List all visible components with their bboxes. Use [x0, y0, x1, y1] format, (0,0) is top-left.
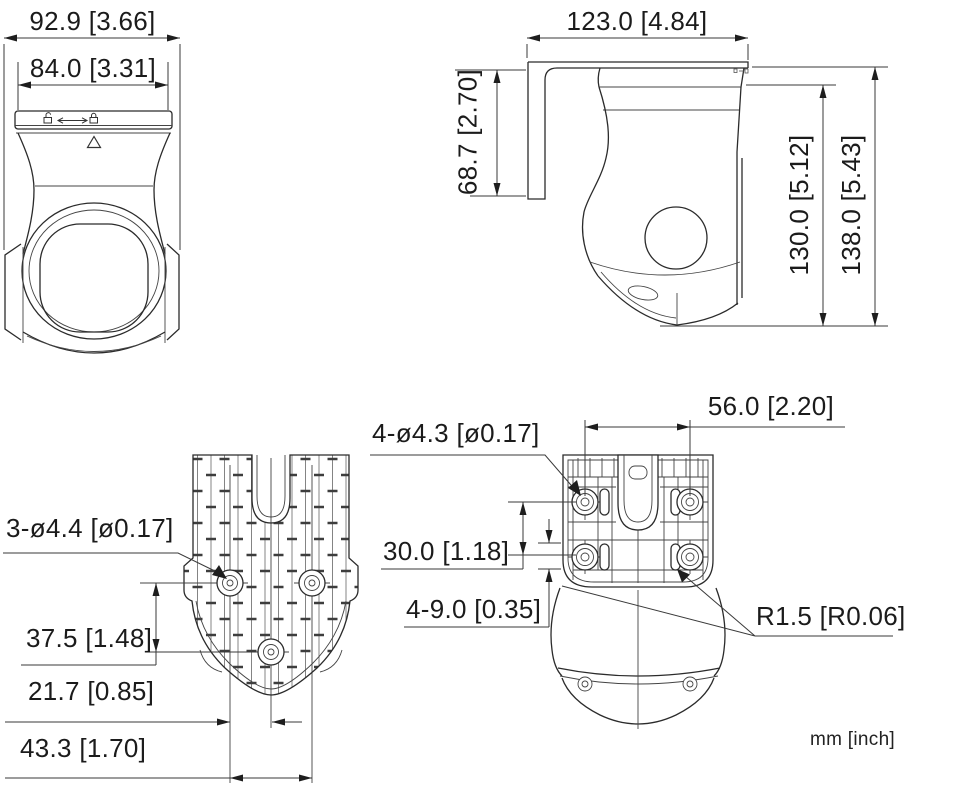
plate-holes-callout: 4-ø4.3 [ø0.17] [372, 419, 544, 447]
cap-markings-icon [734, 69, 748, 73]
side-overall-height-dim: 138.0 [5.43] [837, 130, 865, 280]
front-side-panels [5, 244, 179, 343]
wall-bracket [528, 62, 748, 199]
back-horizontal-inner-dim: 21.7 [0.85] [28, 677, 158, 705]
side-vent [627, 284, 659, 303]
plate-hole-spacing-h-dim: 56.0 [2.20] [696, 392, 846, 420]
side-bracket-height-dim: 68.7 [2.70] [454, 65, 482, 200]
lock-icon [90, 113, 98, 123]
unlock-icon [44, 113, 52, 123]
plate-slots-callout: 4-9.0 [0.35] [406, 595, 548, 623]
front-outer-width-dim: 92.9 [3.66] [10, 7, 175, 35]
side-depth-dim: 123.0 [4.84] [542, 7, 732, 35]
back-vertical-spacing-dim: 37.5 [1.48] [26, 624, 158, 652]
back-horizontal-outer-dim: 43.3 [1.70] [20, 734, 150, 762]
front-inner-width-dim: 84.0 [3.31] [20, 54, 166, 82]
slide-arrow-icon [58, 118, 87, 123]
plate-corner-radius-callout: R1.5 [R0.06] [756, 602, 896, 630]
units-note: mm [inch] [800, 726, 905, 754]
plate-cable-notch [618, 455, 658, 530]
under-view [551, 588, 725, 729]
side-dimension-lines [455, 35, 888, 327]
plate-hole-spacing-v-dim: 30.0 [1.18] [383, 537, 523, 565]
triangle-marker-icon [88, 137, 101, 148]
side-camera-body [583, 68, 748, 325]
side-body-height-dim: 130.0 [5.12] [785, 130, 813, 280]
front-dome-inner [29, 210, 159, 332]
front-lens-window [40, 224, 148, 332]
dimensional-drawing-canvas: 92.9 [3.66] 84.0 [3.31] 123.0 [4.84] 68.… [0, 0, 960, 800]
side-view [455, 35, 888, 327]
side-lens [645, 207, 707, 269]
back-holes-callout: 3-ø4.4 [ø0.17] [6, 514, 182, 542]
